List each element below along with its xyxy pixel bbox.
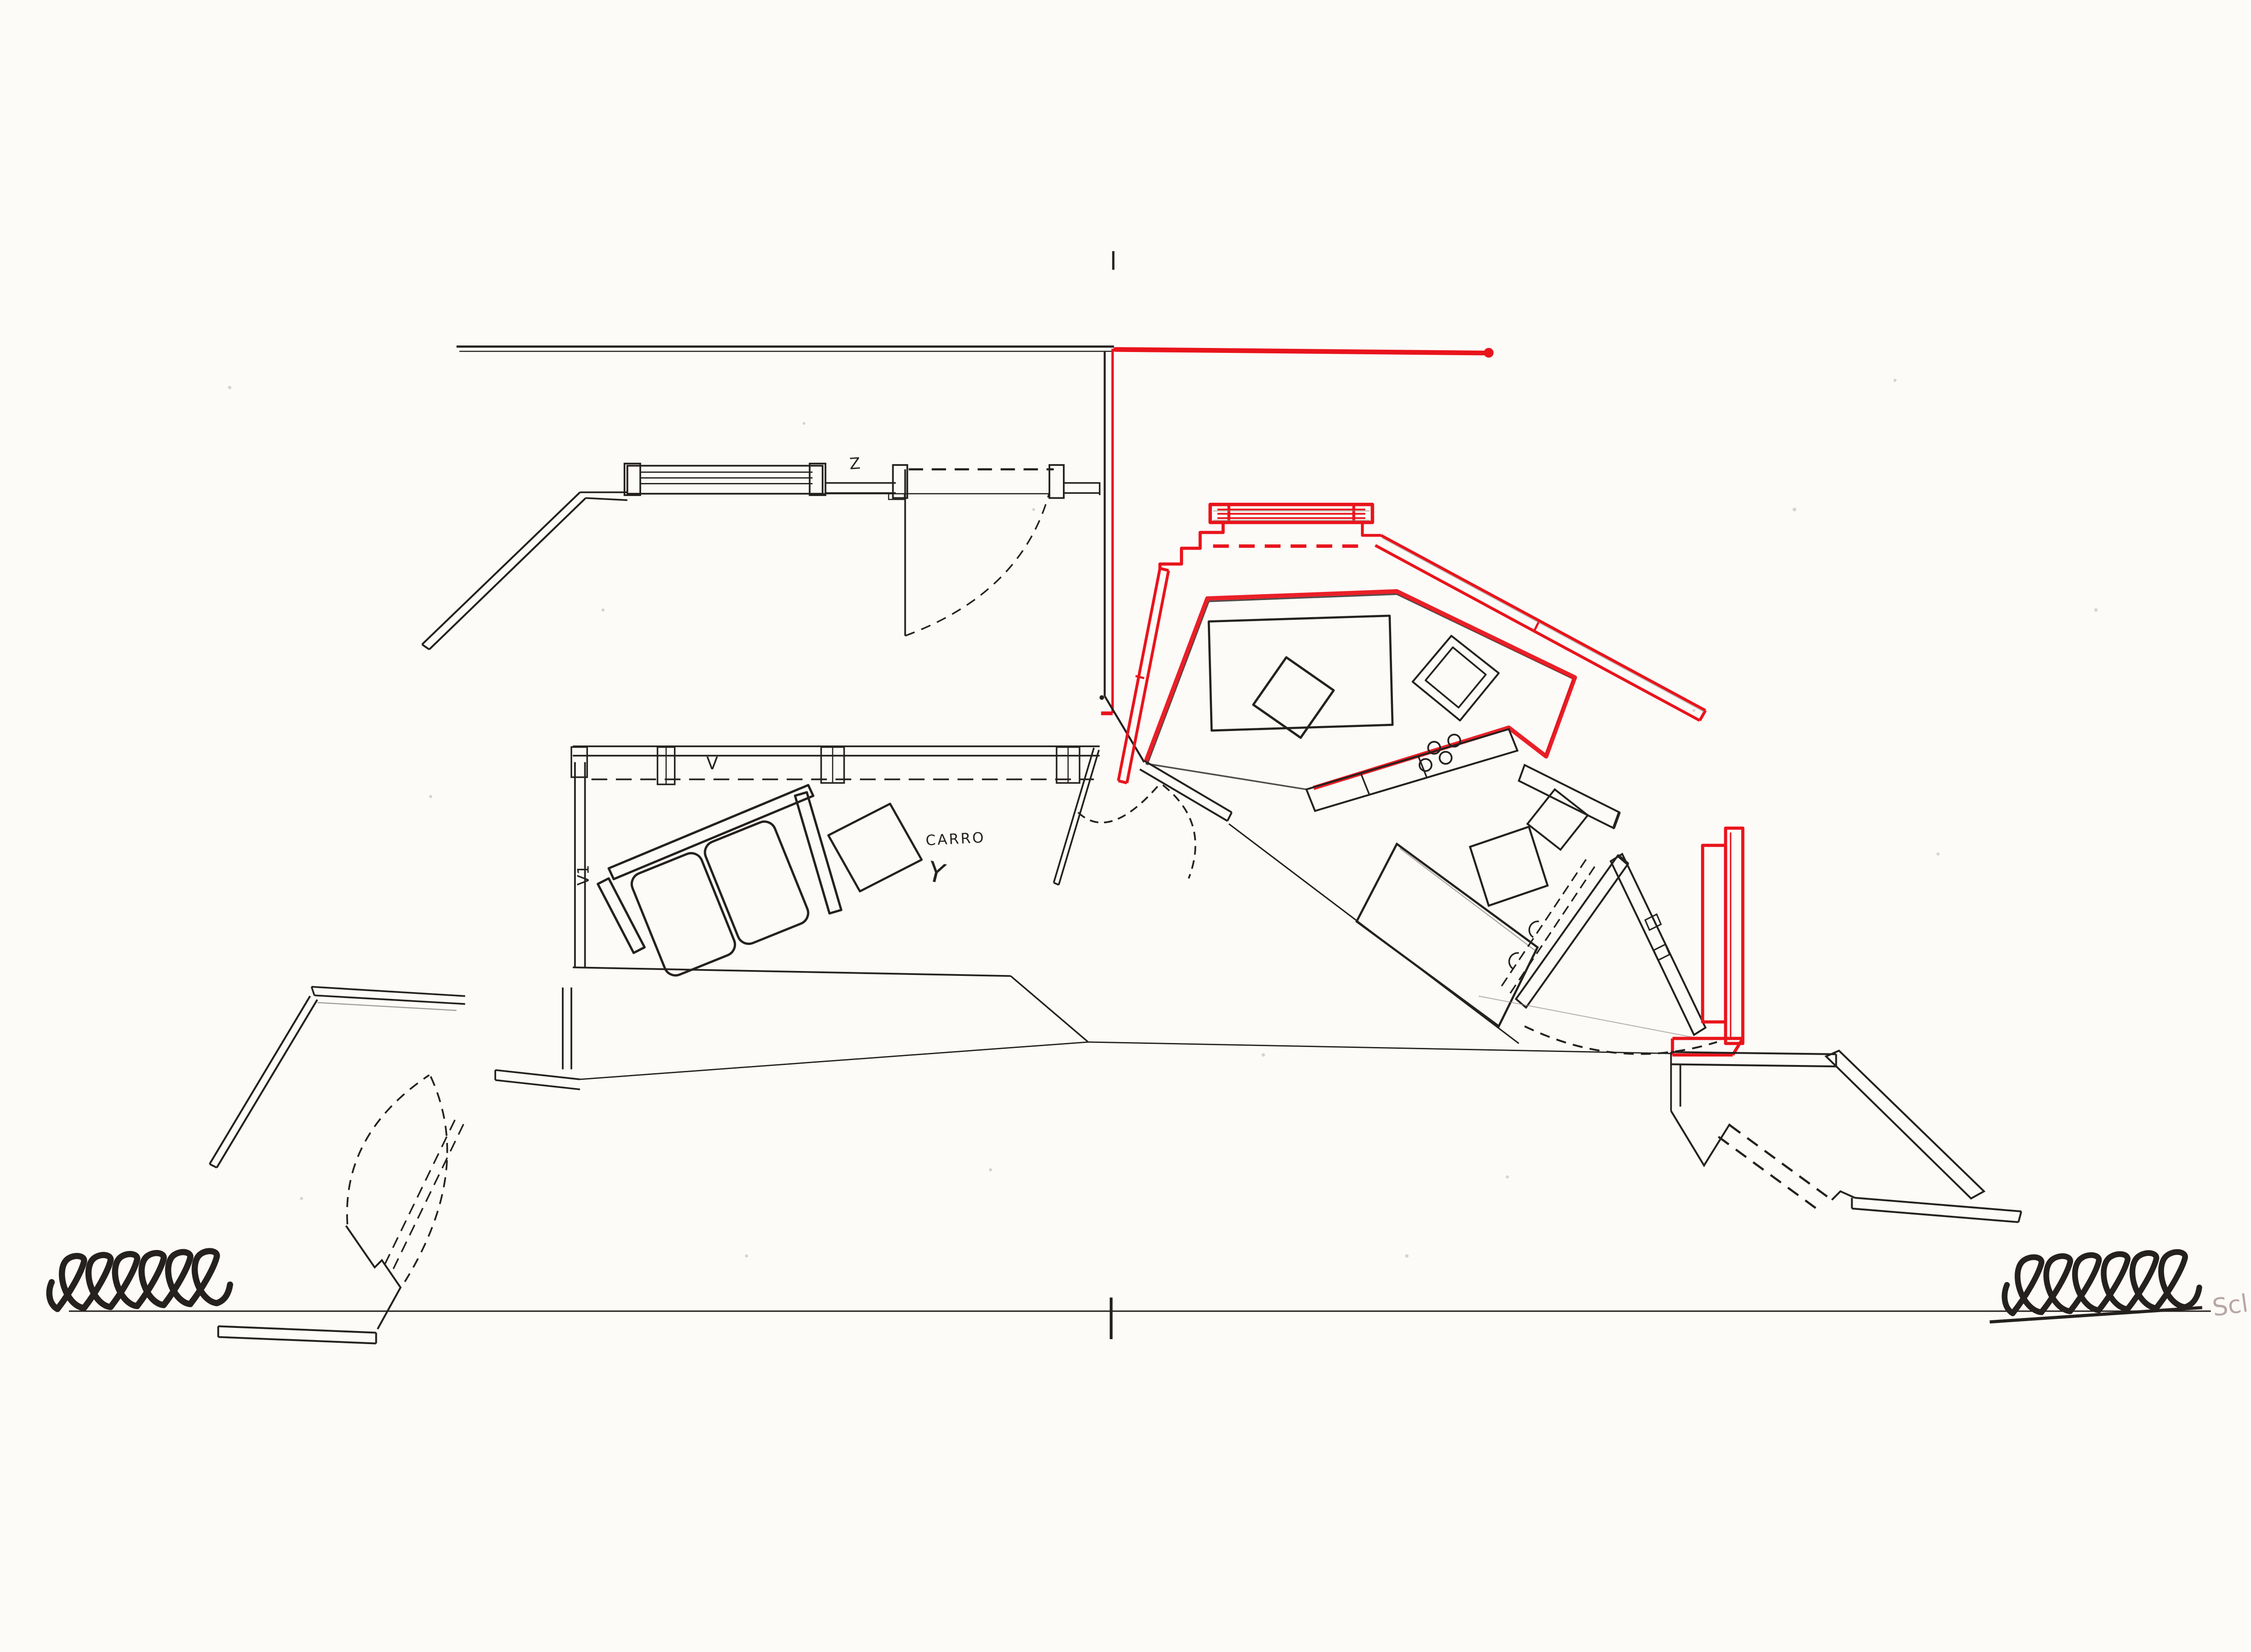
red-window — [1210, 505, 1372, 523]
partition-swing-arc — [1524, 1026, 1717, 1054]
sofa — [598, 785, 922, 979]
partition-leaf-b — [1611, 854, 1705, 1035]
bed — [1356, 844, 1537, 1026]
platform-left-wall — [1671, 1052, 1681, 1111]
paper-specks — [228, 379, 2097, 1257]
red-overlays — [1118, 505, 1743, 1055]
label-window-v: V — [706, 754, 718, 774]
counter-band — [1306, 729, 1518, 811]
pen-dot — [1099, 695, 1104, 700]
red-pen-blob — [1484, 348, 1494, 358]
red-ramp-wall — [1118, 569, 1169, 783]
counter-right-band — [1519, 765, 1619, 828]
living-room: V V1 — [571, 746, 1099, 976]
right-break-squiggle-icon — [2005, 1252, 2200, 1313]
wall-post-4 — [1057, 747, 1080, 783]
parapet-band — [312, 987, 465, 1004]
red-diagonal-wall — [1362, 523, 1705, 721]
partitions — [1478, 854, 1717, 1054]
sofa-armrest-left — [598, 878, 645, 952]
door-swing-arc — [905, 492, 1049, 636]
leaf-b-tabs — [1645, 914, 1669, 960]
entry-bottom-band — [218, 1326, 376, 1343]
lower-right-stair — [1671, 1051, 2021, 1222]
label-cart: CARRO — [925, 829, 985, 849]
window-sill-lines — [640, 472, 813, 484]
entry-swing-arc-1 — [347, 1075, 429, 1224]
wall-band — [580, 466, 627, 500]
page-marks: Scl — [50, 251, 2250, 1339]
diagonal-wall — [422, 492, 586, 650]
side-table — [828, 804, 922, 892]
bottom-wall — [573, 967, 1011, 976]
stair-dashed-flight — [1718, 1125, 1832, 1211]
window-frame — [627, 466, 823, 494]
door-swing-arc-a — [1078, 784, 1160, 822]
label-window-v1: V1 — [574, 865, 592, 885]
sofa-back-rail — [609, 785, 813, 879]
partition-leaf-a — [1516, 855, 1628, 1007]
counter-divider-1 — [1361, 774, 1370, 795]
red-datum-horizontal — [1116, 349, 1487, 353]
stool-left — [1253, 657, 1334, 738]
chair-diamond — [1528, 790, 1588, 850]
wall-band-3 — [1064, 482, 1100, 495]
floor-plan-drawing: Scl Z — [0, 0, 2251, 1652]
entry-step-zigzag — [346, 1226, 400, 1329]
margin-note: Scl — [2210, 1289, 2250, 1322]
stool-right-double — [1413, 636, 1499, 720]
hall-right-edge — [1011, 976, 1088, 1042]
desk — [1209, 616, 1392, 731]
door-leaf-diagonal — [1054, 748, 1099, 885]
sofa-cushion-1 — [628, 850, 739, 979]
stair-railing — [1826, 1051, 1984, 1198]
label-cart-letter: Y — [924, 856, 949, 890]
bottom-wall-band — [1852, 1198, 2021, 1222]
sofa-cushion-2 — [701, 818, 812, 948]
kitchen-counter — [1306, 729, 1619, 850]
wall-band-2 — [826, 483, 896, 493]
burner — [1440, 752, 1452, 764]
studio-room — [1146, 591, 1575, 790]
red-screen — [1672, 828, 1743, 1055]
bed-pencil-line — [1400, 848, 1535, 950]
swing-chord — [1478, 996, 1702, 1039]
lower-left-entrance — [210, 987, 580, 1343]
wall-post-3 — [821, 747, 844, 783]
left-break-squiggle-icon — [50, 1251, 230, 1309]
top-wall-and-datum — [457, 347, 1494, 762]
partition-leaf-dashed — [1501, 857, 1596, 993]
label-door-z: Z — [849, 454, 861, 474]
bed-side-square — [1470, 827, 1547, 906]
step-to-living-room — [495, 988, 580, 1089]
upper-left-wall: Z — [422, 454, 1100, 650]
terrace-edge — [580, 1042, 1671, 1079]
parapet-shadow — [317, 1002, 457, 1011]
entrance-diagonal-wall — [210, 996, 317, 1168]
